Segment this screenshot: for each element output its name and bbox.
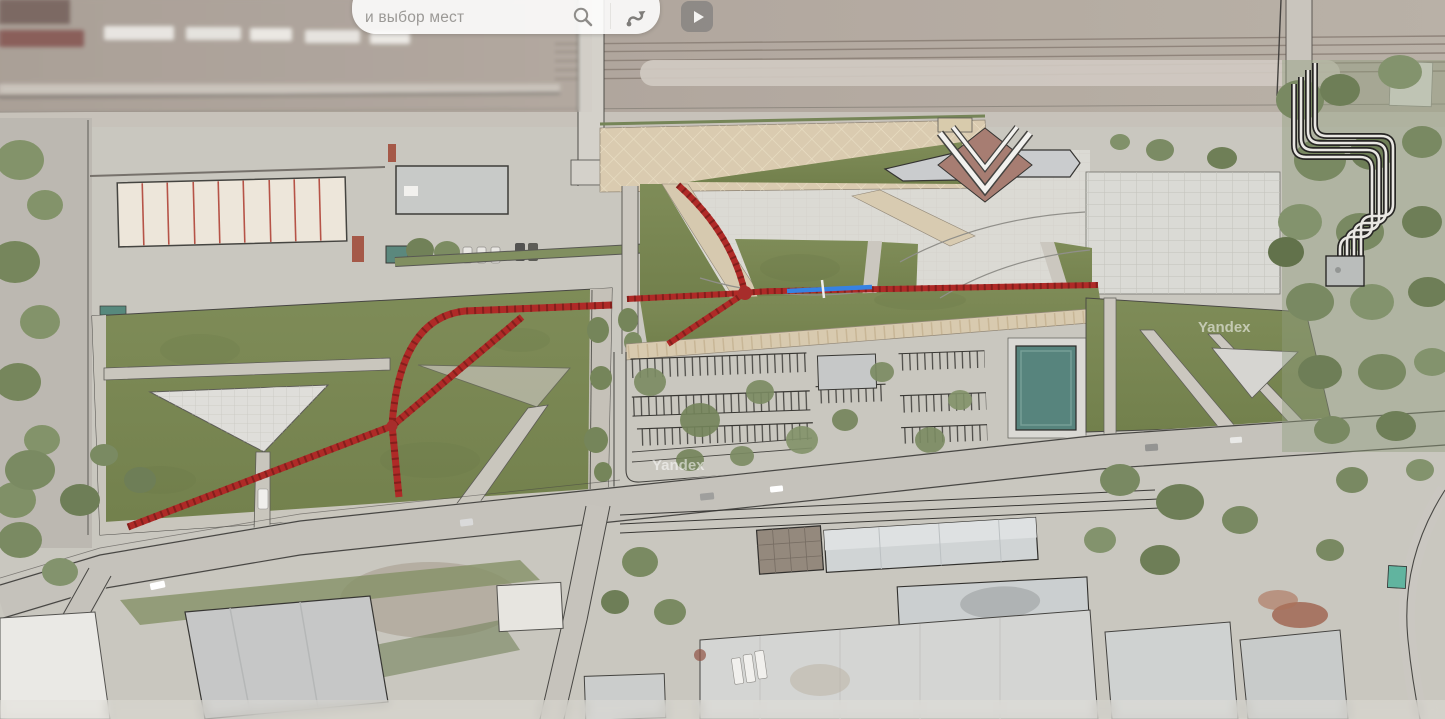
pool — [1016, 346, 1076, 430]
divider — [610, 3, 611, 29]
routes-icon[interactable] — [624, 5, 648, 29]
pipeline-chamber — [1326, 256, 1364, 286]
warehouse-building — [117, 177, 347, 247]
yandex-watermark: Yandex — [1198, 319, 1251, 336]
search-bar[interactable]: и выбор мест — [352, 0, 660, 34]
long-roof-building — [824, 518, 1038, 573]
bottom-blur-bar — [0, 700, 1445, 719]
play-icon — [694, 11, 704, 23]
map-application-window: Yandex Yandex и выбор мест — [0, 0, 1445, 719]
play-button[interactable] — [681, 1, 713, 32]
search-input[interactable]: и выбор мест — [365, 9, 464, 27]
search-icon[interactable] — [571, 5, 595, 29]
yandex-watermark: Yandex — [652, 457, 705, 474]
right-tree-mass — [1268, 55, 1445, 452]
